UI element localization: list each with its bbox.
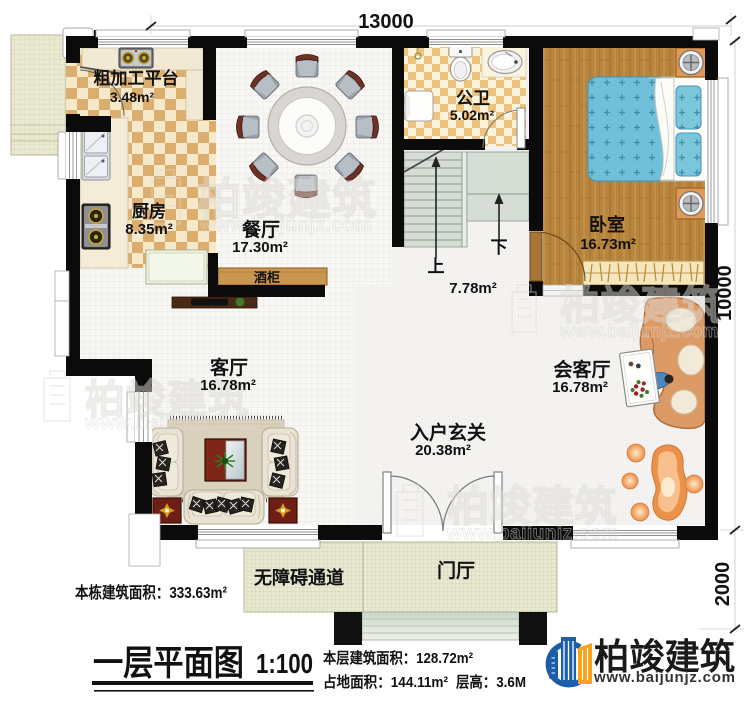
svg-text:www.baijunjz.com: www.baijunjz.com: [446, 523, 619, 544]
svg-text:下: 下: [491, 238, 508, 257]
svg-text:本层建筑面积：128.72m²: 本层建筑面积：128.72m²: [323, 649, 473, 667]
svg-text:公卫: 公卫: [456, 89, 490, 108]
svg-text:会客厅: 会客厅: [553, 358, 610, 381]
svg-text:13000: 13000: [358, 11, 414, 33]
svg-text:7.78m²: 7.78m²: [449, 280, 497, 297]
svg-text:16.73m²: 16.73m²: [580, 236, 636, 253]
svg-text:上: 上: [428, 257, 445, 276]
svg-text:酒柜: 酒柜: [254, 270, 280, 285]
svg-text:一层平面图: 一层平面图: [93, 644, 244, 683]
svg-text:门厅: 门厅: [437, 559, 475, 582]
svg-text:16.78m²: 16.78m²: [552, 379, 608, 396]
svg-text:粗加工平台: 粗加工平台: [94, 68, 179, 88]
svg-text:1:100: 1:100: [256, 648, 313, 679]
svg-text:卧室: 卧室: [589, 214, 625, 235]
svg-text:2000: 2000: [712, 562, 734, 607]
svg-text:无障碍通道: 无障碍通道: [254, 567, 344, 588]
svg-text:www.baijunjz.com: www.baijunjz.com: [559, 321, 719, 341]
svg-text:www.baijunjz.com: www.baijunjz.com: [84, 413, 257, 434]
svg-text:厨房: 厨房: [132, 201, 166, 221]
svg-text:层高：3.6M: 层高：3.6M: [456, 673, 526, 691]
svg-text:入户玄关: 入户玄关: [410, 421, 486, 444]
svg-text:客厅: 客厅: [210, 356, 248, 379]
svg-text:17.30m²: 17.30m²: [232, 239, 288, 256]
svg-text:餐厅: 餐厅: [242, 218, 280, 241]
svg-text:5.02m²: 5.02m²: [450, 107, 495, 123]
svg-text:3.48m²: 3.48m²: [110, 89, 155, 105]
svg-text:www.baijunjz.com: www.baijunjz.com: [593, 669, 735, 686]
svg-text:www.baijunjz.com: www.baijunjz.com: [199, 215, 372, 236]
svg-text:20.38m²: 20.38m²: [415, 442, 471, 459]
svg-text:8.35m²: 8.35m²: [125, 221, 173, 238]
svg-text:占地面积：144.11m²: 占地面积：144.11m²: [323, 673, 448, 691]
svg-text:16.78m²: 16.78m²: [200, 377, 256, 394]
svg-text:本栋建筑面积：333.63m²: 本栋建筑面积：333.63m²: [75, 583, 227, 602]
svg-text:10000: 10000: [714, 265, 736, 321]
